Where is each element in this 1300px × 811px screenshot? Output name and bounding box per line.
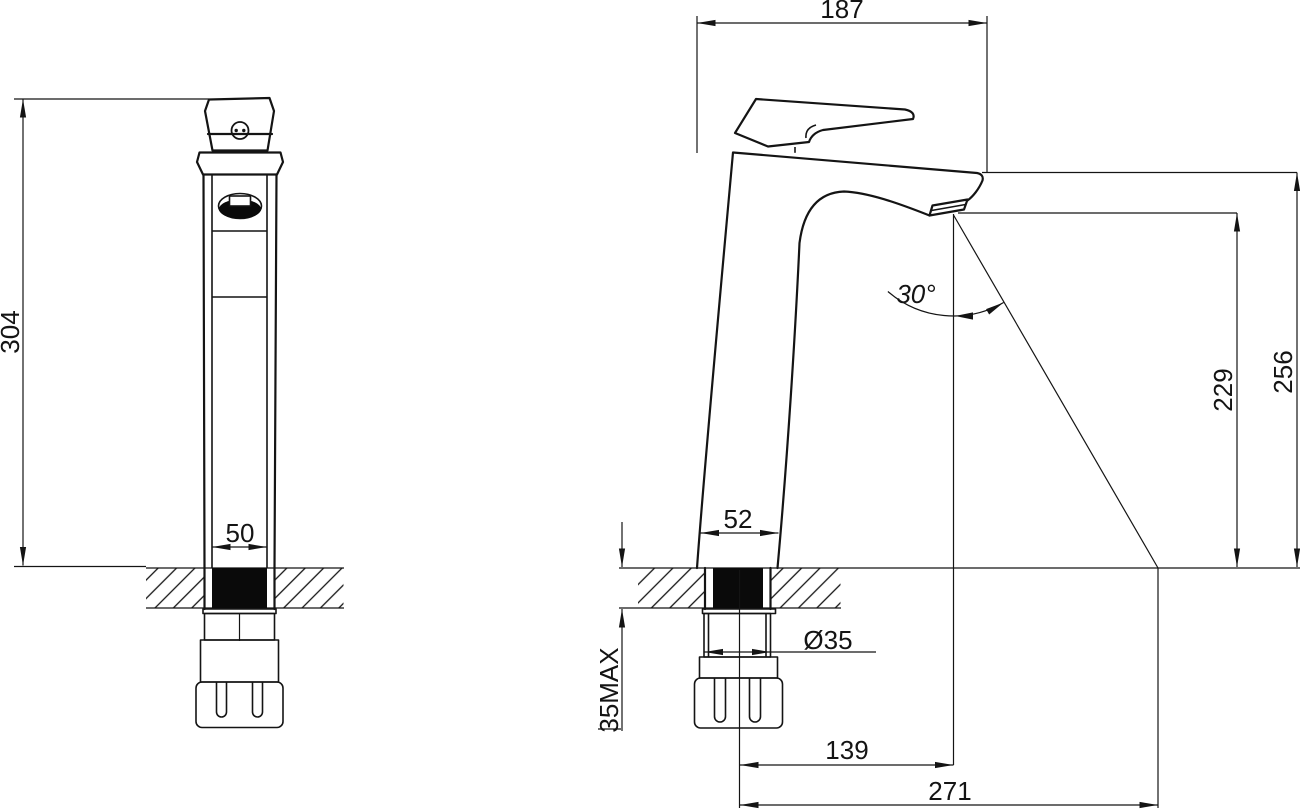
side-shank-band <box>704 614 771 658</box>
dim-label-50: 50 <box>226 518 255 548</box>
dim-label-256: 256 <box>1268 350 1298 393</box>
dim-label-271: 271 <box>928 776 971 806</box>
side-body-through-counter <box>713 568 763 608</box>
side-counter-hatch-right <box>771 568 841 608</box>
side-handle-curl <box>806 125 816 138</box>
side-ribbed-nut <box>695 678 783 728</box>
front-view: 304 50 <box>0 98 344 728</box>
front-nut-groove-left <box>217 682 227 717</box>
dim-label-52: 52 <box>724 504 753 534</box>
front-body-through-counter <box>212 568 267 608</box>
dim-front-height: 304 <box>0 99 209 567</box>
front-indicator-ring <box>232 122 249 139</box>
spray-slant-ray <box>954 215 1159 568</box>
front-indicator-dot-right <box>242 129 245 132</box>
side-view: 187 30° 229 256 52 <box>594 0 1300 808</box>
dim-max-deck-thickness: 35MAX <box>594 522 624 733</box>
front-indicator-dot-left <box>235 129 238 132</box>
front-counter-hatch-left <box>146 568 205 608</box>
dim-label-139: 139 <box>825 735 868 765</box>
dim-label-30deg: 30° <box>896 279 935 309</box>
side-nut-groove-right <box>750 678 761 722</box>
front-faucet-body <box>197 98 283 568</box>
dim-spray-angle: 30° <box>888 214 1158 765</box>
dim-label-187: 187 <box>820 0 863 24</box>
dim-label-35max: 35MAX <box>594 647 624 732</box>
front-aerator-tab <box>230 196 251 206</box>
dim-spout-reach: 139 <box>740 735 954 765</box>
dim-label-304: 304 <box>0 310 25 353</box>
side-faucet-body <box>697 99 983 568</box>
front-spout-shoulder <box>197 153 283 175</box>
side-nut-collar <box>700 657 778 678</box>
dim-side-reach: 187 <box>697 0 987 172</box>
side-counter-hatch-left <box>638 568 705 608</box>
front-body-left-outer <box>204 175 205 569</box>
dim-shank-diameter: Ø35 <box>705 625 877 655</box>
front-nut-collar <box>201 640 279 682</box>
dim-label-dia35: Ø35 <box>803 625 852 655</box>
spray-angle-arrow-left <box>955 312 973 319</box>
front-body-right-outer <box>275 175 277 569</box>
side-handle-lever <box>735 99 914 147</box>
front-nut-groove-right <box>253 682 263 717</box>
front-counter-hatch-right <box>275 568 344 608</box>
drawing-svg: 304 50 <box>0 0 1300 811</box>
side-neck-underside <box>778 192 930 569</box>
faucet-technical-drawing: 304 50 <box>0 0 1300 811</box>
side-nut-groove-left <box>715 678 726 722</box>
dim-front-base-width: 50 <box>212 518 267 548</box>
dim-label-229: 229 <box>1208 368 1238 411</box>
dim-overall-height: 256 <box>982 173 1298 568</box>
front-handle-cap <box>205 98 274 151</box>
dim-spout-height: 229 <box>958 213 1238 567</box>
dim-side-base-width: 52 <box>701 504 779 534</box>
front-ribbed-nut <box>196 682 283 728</box>
